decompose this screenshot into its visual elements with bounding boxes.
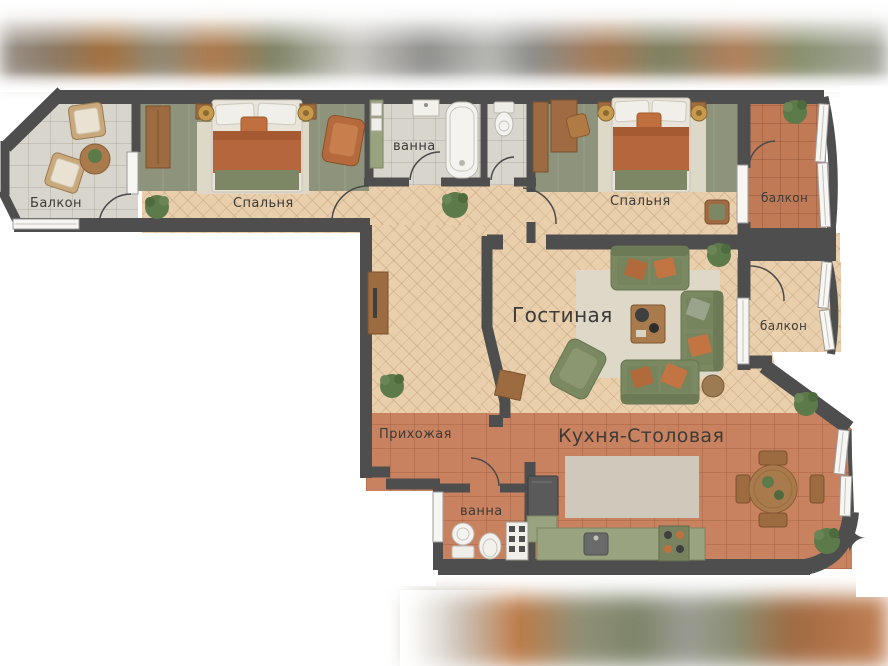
kitchen-window [834, 430, 850, 475]
toilet [494, 102, 514, 136]
kitchen-window [839, 476, 851, 516]
plant [442, 192, 468, 218]
sofa [681, 291, 723, 371]
balcony-left-window [13, 219, 79, 229]
toilet [452, 523, 474, 558]
dining-chair [759, 451, 787, 465]
balcony-left-label: Балкон [30, 196, 82, 211]
compass-star-icon: ✦ [828, 515, 872, 563]
wall-lamp-icon [198, 105, 214, 121]
balcony-top-right-window [815, 104, 829, 163]
plant [145, 195, 169, 219]
armchair [321, 114, 366, 167]
wicker-chair [68, 102, 106, 140]
plant [783, 100, 807, 124]
hallway-label: Прихожая [379, 427, 452, 442]
bathtub [446, 102, 478, 178]
washing-machine [506, 522, 528, 560]
pouf [702, 375, 724, 397]
plant [380, 374, 404, 398]
sofa [621, 360, 699, 404]
kitchen-sink [584, 533, 608, 555]
entrance-door-panel [433, 492, 443, 542]
living-room-balcony-window [737, 298, 749, 364]
hall-console [495, 370, 526, 401]
bedroom-left-label: Спальня [233, 196, 294, 211]
bed [212, 100, 302, 192]
bathroom-bottom-label: ванна [460, 504, 503, 519]
kitchen-dining-label: Кухня-Столовая [558, 425, 724, 447]
fridge [528, 476, 558, 516]
wardrobe [533, 102, 548, 172]
floor-plan-image: Балкон Спальня ванна Спальня балкон Гост… [0, 0, 888, 666]
balcony-left-door-panel [127, 152, 138, 194]
coffee-table [631, 305, 665, 343]
bedroom-right-label: Спальня [610, 194, 671, 209]
plant [707, 243, 731, 267]
windows [13, 104, 852, 516]
balcony-mid-right-label: балкон [760, 319, 807, 333]
wardrobe [146, 106, 170, 168]
balcony-coffee-table [80, 144, 110, 174]
living-room-label: Гостиная [512, 303, 613, 327]
plant [794, 392, 818, 416]
wall-lamp-icon [598, 105, 614, 121]
bathroom-sink [479, 533, 501, 559]
wall-lamp-icon [691, 105, 707, 121]
dining-table [736, 451, 824, 527]
tv-console [368, 272, 388, 334]
sink-vanity [413, 100, 439, 116]
wall-lamp-icon [298, 105, 314, 121]
plan-linework [0, 0, 888, 666]
balcony-mid-right-window [818, 262, 832, 309]
stove [659, 526, 689, 561]
dining-chair [759, 513, 787, 527]
bathroom-top-label: ванна [393, 139, 436, 154]
bedroom-right-balcony-door-panel [737, 165, 748, 223]
balcony-top-right-label: балкон [761, 191, 808, 205]
kitchen-rug [565, 456, 699, 518]
dining-chair [810, 475, 824, 503]
dining-chair [736, 475, 750, 503]
sofa [611, 246, 689, 290]
bed [612, 98, 690, 192]
pouf [705, 200, 729, 224]
